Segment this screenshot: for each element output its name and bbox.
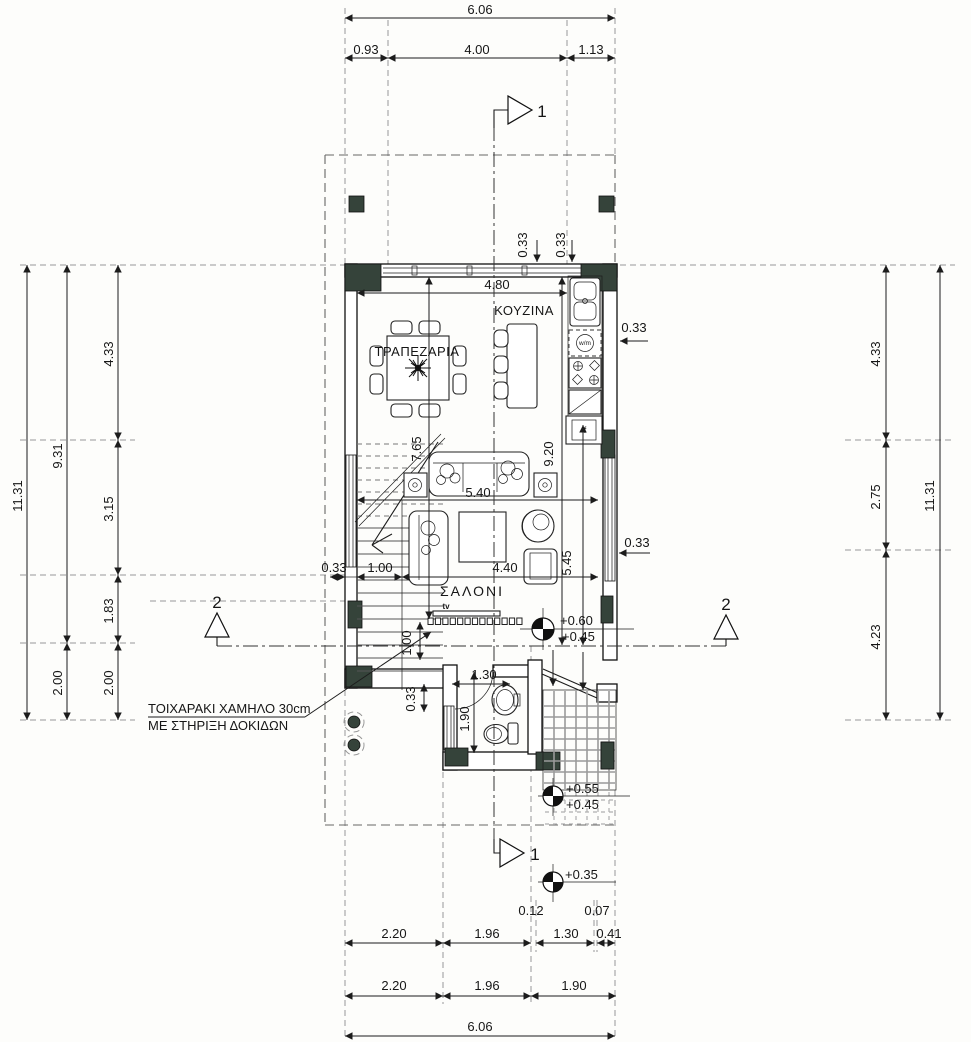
floor-plan-canvas: ΤΡΑΠΕΖΑΡΙΑ ΚΟΥΖΙΝΑ ΣΑΛΟΝΙ tv w/m f +0.60… (0, 0, 971, 1042)
dimension-label: 9.20 (541, 441, 556, 466)
level-value: +0.35 (565, 867, 598, 882)
level-value: +0.45 (562, 629, 595, 644)
dimension-label: 6.06 (467, 2, 492, 17)
washing-machine-label: w/m (578, 340, 591, 347)
dimension-label: 9.31 (50, 443, 65, 468)
section-arrow-bottom (500, 839, 524, 867)
tv-unit (433, 611, 500, 616)
dimension-label: 11.31 (922, 480, 937, 512)
dimension-label: 0.12 (518, 903, 543, 918)
floor-plan-page: ΤΡΑΠΕΖΑΡΙΑ ΚΟΥΖΙΝΑ ΣΑΛΟΝΙ tv w/m f +0.60… (0, 0, 971, 1042)
dimension-label: 4.40 (492, 560, 517, 575)
section-label-right: 2 (721, 595, 730, 614)
dimension-label: 0.33 (321, 560, 346, 575)
section-label-left: 2 (212, 593, 221, 612)
wc-sink-icon (492, 685, 520, 715)
room-label-living: ΣΑΛΟΝΙ (440, 583, 504, 599)
section-label-bottom: 1 (530, 845, 539, 864)
kitchen-fixtures (494, 276, 602, 444)
dimension-label: 4.80 (484, 277, 509, 292)
dimension-label: 2.20 (381, 926, 406, 941)
dimension-label: 0.33 (621, 320, 646, 335)
dimension-label: 2.20 (381, 978, 406, 993)
dimension-label: 0.33 (553, 232, 568, 257)
square-armchair (524, 549, 557, 584)
dimension-label: 4.33 (868, 341, 883, 366)
room-label-kitchen: ΚΟΥΖΙΝΑ (494, 303, 554, 318)
dimension-label: 2.00 (101, 670, 116, 695)
dimension-label: 1.00 (399, 630, 414, 655)
section-label-top: 1 (537, 102, 546, 121)
level-value: +0.55 (566, 781, 599, 796)
dimension-label: 1.96 (474, 978, 499, 993)
room-label-dining: ΤΡΑΠΕΖΑΡΙΑ (375, 344, 460, 359)
dimension-label: 7.65 (409, 436, 424, 461)
stove-icon (569, 358, 601, 388)
coffee-table (459, 512, 506, 562)
entrance-door (542, 669, 598, 698)
dimension-label: 0.07 (584, 903, 609, 918)
dimension-label: 2.00 (50, 670, 65, 695)
level-value: +0.60 (560, 613, 593, 628)
level-value: +0.45 (566, 797, 599, 812)
dimension-label: 11.31 (10, 480, 25, 512)
dimension-label: 2.75 (868, 484, 883, 509)
section-arrow-top (508, 96, 532, 124)
dimension-label: 5.45 (559, 550, 574, 575)
dimension-label: 1.30 (553, 926, 578, 941)
dimension-label: 1.30 (471, 667, 496, 682)
section-arrow-right (714, 615, 738, 639)
dimension-label: 0.41 (596, 926, 621, 941)
dimension-label: 0.33 (403, 686, 418, 711)
dimension-label: 4.23 (868, 624, 883, 649)
dimension-label: 0.93 (353, 42, 378, 57)
dimension-label: 0.33 (624, 535, 649, 550)
dimension-label: 1.13 (578, 42, 603, 57)
section-arrow-left (205, 613, 229, 637)
dimension-label: 1.00 (367, 560, 392, 575)
section-line-2 (205, 613, 738, 646)
round-armchair (522, 510, 554, 542)
note-text-line1: ΤΟΙΧΑΡΑΚΙ ΧΑΜΗΛΟ 30cm (148, 701, 311, 716)
toilet-icon (484, 723, 518, 744)
tv-label: tv (442, 602, 450, 611)
dimension-label: 6.06 (467, 1019, 492, 1034)
dimension-label: 3.15 (101, 496, 116, 521)
dimension-label: 4.33 (101, 341, 116, 366)
kitchen-sink-icon (570, 278, 600, 326)
dimension-label: 5.40 (465, 485, 490, 500)
note-text-line2: ΜΕ ΣΤΗΡΙΞΗ ΔΟΚΙΔΩΝ (148, 718, 288, 733)
dimension-label: 1.90 (457, 706, 472, 731)
dimension-label: 4.00 (464, 42, 489, 57)
dining-table-set (370, 321, 466, 417)
dimension-label: 1.83 (101, 598, 116, 623)
dimension-label: 0.33 (515, 232, 530, 257)
dimension-label: 1.90 (561, 978, 586, 993)
dimension-label: 1.96 (474, 926, 499, 941)
